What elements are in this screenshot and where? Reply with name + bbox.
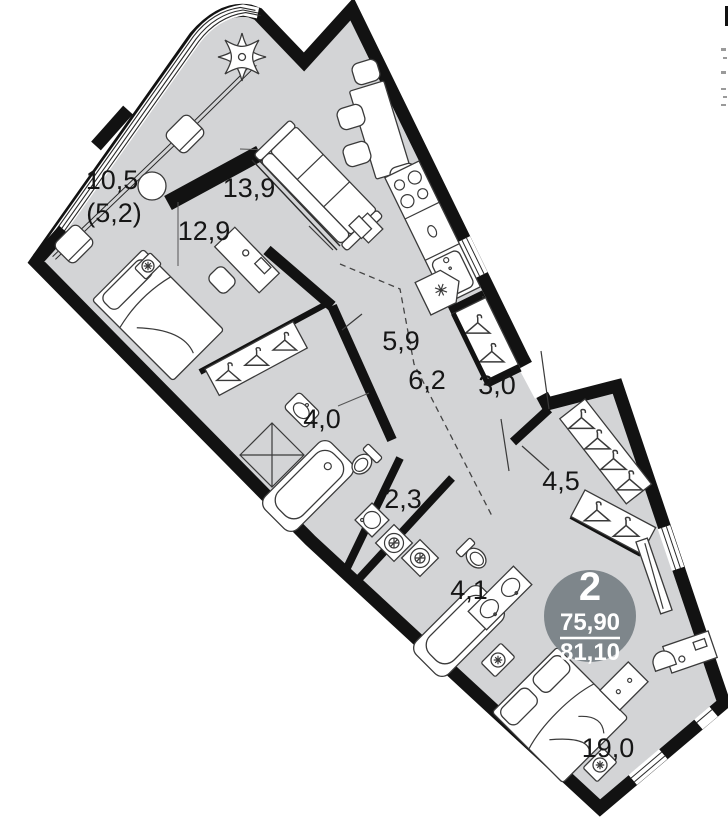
room-sublabel-5-2: (5,2): [86, 198, 142, 228]
room-label-3-0: 3,0: [478, 370, 516, 400]
room-label-12-9: 12,9: [178, 216, 231, 246]
room-label-10-5: 10,5: [86, 165, 139, 195]
round-table: [138, 172, 166, 200]
badge-area-living: 75,90: [560, 609, 620, 636]
room-label-6-2: 6,2: [408, 365, 446, 395]
floor-plan-page: 2 75,90 81,10 10,5 (5,2) 13,9 12,9 5,9 6…: [0, 0, 728, 820]
edge-artifacts: [721, 6, 728, 106]
floor-plan-svg: 2 75,90 81,10 10,5 (5,2) 13,9 12,9 5,9 6…: [0, 0, 728, 820]
badge-room-count: 2: [579, 565, 601, 609]
badge-area-total: 81,10: [560, 639, 620, 666]
room-label-4-5: 4,5: [542, 466, 580, 496]
room-label-4-1: 4,1: [450, 575, 488, 605]
room-label-5-9: 5,9: [382, 326, 420, 356]
room-label-4-0: 4,0: [303, 404, 341, 434]
room-label-13-9: 13,9: [223, 173, 276, 203]
room-label-19-0: 19,0: [582, 733, 635, 763]
room-label-2-3: 2,3: [384, 484, 422, 514]
